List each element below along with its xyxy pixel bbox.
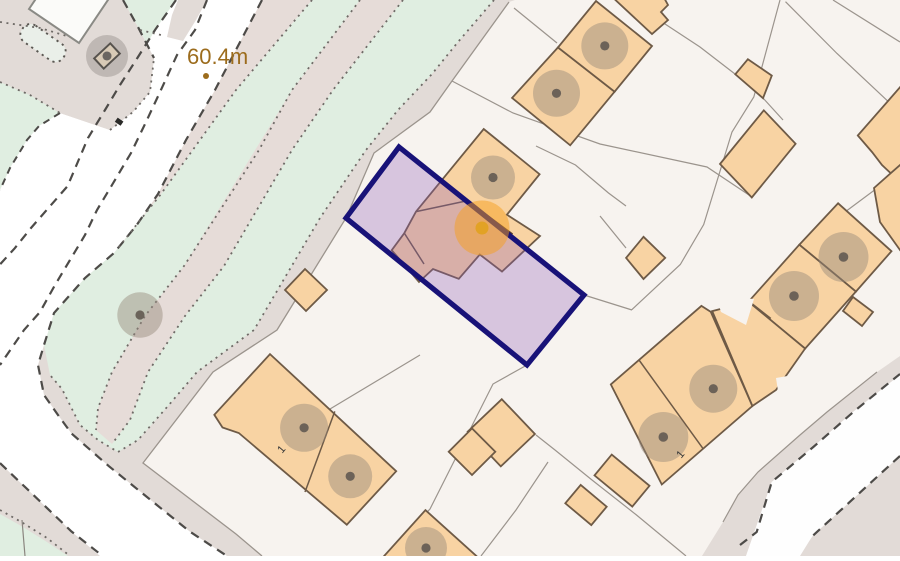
svg-text:60.4m: 60.4m — [187, 44, 248, 69]
